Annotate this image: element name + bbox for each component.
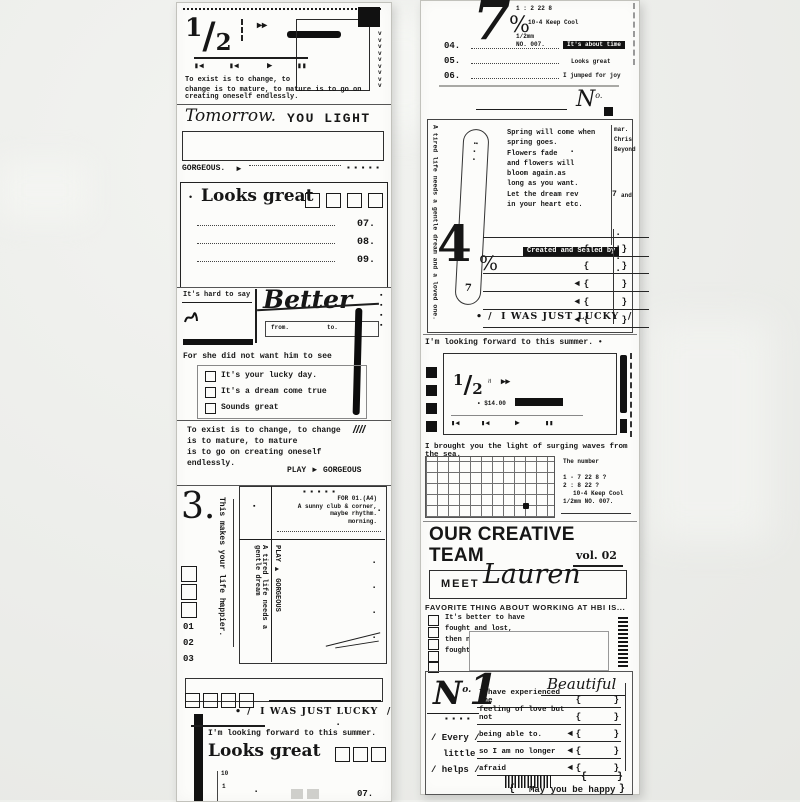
black-square: [426, 385, 437, 396]
dash-ruler: [241, 19, 243, 41]
checkbox: [205, 371, 216, 382]
checkbox: [205, 403, 216, 414]
note-line: maybe rhythm.: [277, 510, 377, 518]
side-note: The number: [563, 459, 599, 465]
thick-vertical-bar: [194, 714, 203, 801]
brace-pair: { }: [584, 279, 627, 289]
checkbox: [368, 193, 383, 208]
summer-caption: I'm looking forward to this summer. •: [425, 339, 603, 347]
to-label: to.: [327, 325, 338, 331]
section-divider: [177, 420, 391, 421]
rule: [625, 683, 626, 771]
checkbox: [185, 693, 200, 708]
lucky-label: •/ I WAS JUST LUCKY /: [235, 707, 391, 717]
vertical-caption: This makes your life happier.: [217, 497, 225, 647]
bullet: •: [476, 312, 483, 322]
you-light-label: YOU LIGHT: [287, 112, 371, 125]
checkbox: [305, 193, 320, 208]
side-note: 1 - 7 22 8 ?: [563, 475, 606, 481]
numero-mark: No.: [433, 677, 471, 709]
checkbox: [428, 615, 439, 626]
brace-pair: { }: [584, 244, 627, 254]
square-dots: ▪ ▪ ▪ ▪: [445, 715, 470, 723]
poem-line: Flowers fade: [507, 151, 557, 158]
side-number: 7: [612, 191, 617, 199]
square-dot-column: ▪ ▪ ▪ ▪: [373, 551, 375, 651]
bullet: •: [189, 193, 192, 202]
row-number: 07.: [339, 220, 375, 230]
dotted-leader: [197, 243, 335, 244]
from-label: from.: [271, 325, 289, 331]
square-dot: ▪: [378, 508, 380, 514]
pill-number: 7: [464, 284, 471, 294]
bullet: •: [235, 707, 242, 717]
gray-square: [307, 789, 319, 799]
rule: [191, 725, 265, 727]
rule: [182, 302, 252, 303]
play-label: PLAY: [287, 467, 306, 475]
dashed-edge: [630, 353, 632, 437]
checkbox: [371, 747, 386, 762]
vertical-text-play: PLAY ► GORGEOUS: [273, 545, 280, 645]
brace-pair: { }: [584, 297, 627, 307]
dotted-rule: [183, 8, 381, 10]
option-line: It's better to have: [445, 615, 525, 622]
pause-icon: ▮▮: [297, 63, 307, 71]
hard-to-say-label: It's hard to say: [183, 292, 250, 299]
option-label: Sounds great: [221, 404, 279, 412]
ruler-tick-label: 1: [222, 784, 226, 790]
statement-text: feeling of love but not: [479, 706, 576, 722]
list-number: 01: [183, 623, 194, 632]
row-number: 07.: [357, 790, 373, 799]
square-dot: ▪: [253, 503, 255, 510]
signature-lauren: Lauren: [483, 561, 581, 588]
brace-pair: { }: [584, 261, 627, 271]
script-tomorrow: Tomorrow.: [185, 108, 276, 125]
rule: [613, 229, 614, 324]
lucky-label: •/ I WAS JUST LUCKY /: [476, 312, 632, 322]
square-dots: ▪ ▪ ▪ ▪ ▪: [347, 164, 379, 172]
meta-line: 1 : 2 22 8: [516, 6, 552, 12]
meta-line: 10-4 Keep Cool: [528, 20, 578, 26]
ruler-tick-label: 10: [221, 771, 228, 777]
side-note: 2 : 8 22 ?: [563, 483, 599, 489]
rule: [476, 109, 567, 110]
brace-pair: { }: [576, 746, 619, 756]
every-label: / Every /: [431, 734, 480, 743]
rule: [233, 499, 234, 647]
checkbox: [428, 639, 439, 650]
bracket-row: ◄{ }: [483, 290, 649, 310]
pause-icon: ▮▮: [545, 421, 553, 428]
arrow-brace-group: ◄{ }: [567, 729, 619, 739]
rule: [451, 415, 583, 416]
pill-dots: ▪▪ ▪ ▪: [473, 140, 479, 164]
play-icon: ▶: [515, 420, 520, 428]
poem-line: and flowers will: [507, 161, 574, 168]
side-note: Beyond: [614, 147, 636, 153]
brace-left: {: [509, 785, 515, 795]
table-header-note: FOR 01.(A4) A sunny club & corner, maybe…: [277, 495, 377, 525]
vertical-divider: [255, 289, 257, 343]
note-line: FOR 01.(A4): [277, 495, 377, 503]
poem-line: Spring will come when: [507, 130, 595, 137]
quote-line: is to mature, to mature: [187, 438, 297, 446]
list-label: Looks great: [571, 59, 611, 65]
dotted-leader: [277, 531, 381, 532]
list-number: 02: [183, 639, 194, 648]
brace-pair: { }: [576, 729, 619, 739]
skip-back-icon: ▮◀: [229, 63, 239, 71]
perforation-edge: [633, 3, 635, 65]
square-dot: ▪: [255, 789, 257, 795]
rule: [194, 57, 308, 59]
checkbox: [203, 693, 218, 708]
scribble-glyph: [183, 309, 199, 325]
team-title-line1: OUR CREATIVE: [429, 525, 575, 544]
meta-line: 1/2mm: [516, 34, 534, 40]
checkbox: [181, 602, 197, 618]
list-number: 03: [183, 655, 194, 664]
grid-dot: [523, 503, 529, 509]
little-label: little: [443, 750, 475, 759]
statement-text: afraid: [479, 765, 506, 773]
lucky-text: / I WAS JUST LUCKY /: [247, 707, 391, 717]
numeral-four: 4: [437, 219, 472, 269]
numero-n: N: [576, 87, 595, 112]
numero-mark: No.: [576, 89, 602, 111]
list-number: 04.: [444, 42, 460, 51]
helps-label: / helps /: [431, 766, 480, 775]
black-square: [604, 107, 613, 116]
dotted-leader: [197, 225, 335, 226]
quote-line: change is to mature, to mature is to go …: [185, 87, 387, 101]
blank-box: [182, 131, 384, 161]
note-line: A sunny club & corner,: [277, 503, 377, 511]
skip-back-icon: ▮◀: [481, 421, 489, 428]
inverted-label: It's about time: [563, 41, 625, 49]
summer-caption: I'm looking forward to this summer.: [208, 730, 376, 738]
looks-great-title: Looks great: [208, 743, 320, 760]
numeral-three: 3.: [181, 489, 215, 525]
meet-label: MEET: [441, 579, 480, 590]
bracket-row: ◄{ }: [483, 272, 649, 292]
numeral-seven: 7: [473, 0, 511, 47]
arrow-brace-group: ◄{ }: [567, 763, 619, 773]
checkbox: [353, 747, 368, 762]
brace-left: {: [581, 773, 587, 783]
numero-sup: o.: [595, 91, 602, 100]
statement-text: being able to.: [479, 731, 542, 739]
arrow-left-icon: ◄: [567, 763, 572, 773]
quote-line: To exist is to change, to change: [187, 427, 341, 435]
quote-line: To exist is to change, to: [185, 77, 290, 84]
numero-n: N: [433, 674, 462, 712]
square-dot: ▪: [222, 601, 224, 607]
fraction-denominator: 2: [216, 29, 232, 56]
side-note: mar.: [614, 127, 628, 133]
favorite-heading: FAVORITE THING ABOUT WORKING AT HBI IS..…: [425, 604, 625, 612]
vertical-text-dream: A tired life needs a gentle dream: [253, 545, 267, 657]
volume-label: vol. 02: [576, 550, 617, 561]
arrow-left-icon: ◄: [567, 729, 572, 739]
checkbox: [335, 747, 350, 762]
team-title-line2: TEAM: [429, 546, 484, 565]
gorgeous-label: GORGEOUS: [323, 467, 361, 475]
statement-text: so I am no longer: [479, 748, 556, 756]
brace-right: }: [619, 785, 625, 795]
fraction-half: 1/2: [453, 373, 483, 397]
side-note: and: [621, 193, 632, 199]
section-divider: [423, 521, 637, 522]
rule: [611, 125, 612, 245]
bracket-row: { }: [483, 254, 649, 274]
black-square: [426, 367, 437, 378]
list-label: I jumped for joy: [563, 73, 621, 79]
table-row-divider: [239, 539, 385, 540]
square-dot-column: ▪ ▪ ▪ ▪: [380, 291, 382, 331]
section-divider: [177, 104, 391, 105]
play-gorgeous-label: PLAY►GORGEOUS: [287, 467, 361, 475]
fast-forward-icon: ▸▸: [257, 21, 267, 31]
side-note: Chris: [614, 137, 632, 143]
background-patch: [0, 160, 90, 220]
fraction-numerator: 1: [185, 13, 202, 42]
list-number: 06.: [444, 72, 460, 81]
tape-strip-right: 7 % 1 : 2 22 8 10-4 Keep Cool 1/2mm NO. …: [420, 0, 640, 795]
list-number: 05.: [444, 57, 460, 66]
statement-row: afraid◄{ }: [477, 756, 621, 776]
fast-forward-icon: ▸▸: [501, 377, 510, 386]
poem-line: bloom again.as: [507, 171, 566, 178]
happy-label: May you be happy: [529, 786, 615, 795]
dotted-leader: [249, 165, 341, 166]
looks-great-title: Looks great: [201, 188, 313, 205]
quote-line: endlessly.: [187, 460, 235, 468]
square-dot: ▪: [337, 722, 339, 728]
squiggle-icon: ≈: [485, 379, 493, 383]
checkbox: [428, 651, 439, 662]
skip-back-icon: ▮◀: [194, 63, 204, 71]
checkbox: [205, 387, 216, 398]
tape-strip-left: 1/2 ▸▸ v v v v v v v v v ▮◀ ▮◀ ▶ ▮▮ To e…: [176, 2, 392, 802]
table-col-divider: [271, 486, 272, 662]
arrow-brace-group: ◄{ }: [567, 746, 619, 756]
background-patch: [650, 320, 770, 540]
side-note: 10-4 Keep Cool: [573, 491, 623, 497]
arrow-right-icon: ►: [235, 165, 243, 173]
checkbox: [181, 566, 197, 582]
side-note: 1/2mm NO. 007.: [563, 499, 613, 505]
statement-text: I have experienced the: [479, 689, 576, 705]
price-label: • $14.00: [477, 401, 506, 407]
square-dot: ▪: [571, 149, 573, 155]
arrow-left-icon: ◄: [574, 279, 579, 289]
slash-marks: ////: [353, 425, 365, 436]
thick-rule: [183, 339, 253, 345]
arrow-left-icon: ◄: [567, 746, 572, 756]
row-number: 09.: [339, 256, 375, 266]
fraction-denominator: 2: [472, 380, 482, 398]
option-label: It's a dream come true: [221, 388, 327, 396]
brace-pair: { }: [576, 695, 619, 705]
ruler-line: [217, 771, 218, 801]
brace-pair: { }: [576, 712, 619, 722]
sentence: For she did not want him to see: [183, 353, 332, 361]
checkbox: [181, 584, 197, 600]
dotted-leader: [471, 78, 559, 79]
checkbox: [428, 627, 439, 638]
brace-right: }: [617, 773, 623, 783]
product-photo-washi-tape: { "symbols": { "skip_icon": "▮◀", "play_…: [0, 0, 800, 800]
arrow-left-icon: ◄: [574, 297, 579, 307]
black-square: [426, 421, 437, 432]
rule: [269, 700, 381, 702]
outline-frame: [296, 19, 370, 91]
black-square: [426, 403, 437, 414]
chevron-column: v v v v v v v v v: [378, 31, 382, 90]
row-number: 08.: [339, 238, 375, 248]
ink-bar: [515, 398, 563, 406]
checkbox: [326, 193, 341, 208]
checkbox: [347, 193, 362, 208]
note-line: morning.: [277, 518, 377, 526]
skip-back-icon: ▮◀: [451, 421, 459, 428]
checkbox: [221, 693, 236, 708]
poem-line: long as you want.: [507, 181, 578, 188]
section-divider: [423, 334, 637, 335]
quote-line: is to go on creating oneself: [187, 449, 321, 457]
gorgeous-label: GORGEOUS.: [182, 165, 225, 173]
dotted-leader: [471, 48, 559, 49]
lucky-text: / I WAS JUST LUCKY /: [488, 312, 632, 322]
thick-vertical-bar: [620, 355, 627, 413]
fraction-numerator: 1: [453, 371, 463, 389]
graph-grid: [425, 456, 555, 518]
gray-square: [291, 789, 303, 799]
thick-vertical-bar: [620, 419, 627, 433]
black-square: [358, 7, 380, 27]
poem-line: spring goes.: [507, 140, 557, 147]
poem-line: Let the dream rev: [507, 192, 578, 199]
arrow-right-icon: ►: [312, 467, 317, 475]
barcode: [618, 617, 628, 669]
rule: [561, 513, 631, 514]
fraction-half: 1/2: [185, 15, 232, 54]
play-icon: ▶: [267, 62, 272, 71]
option-label: It's your lucky day.: [221, 372, 317, 380]
dotted-leader: [471, 63, 559, 64]
poem-line: in your heart etc.: [507, 202, 583, 209]
dotted-leader: [197, 261, 335, 262]
